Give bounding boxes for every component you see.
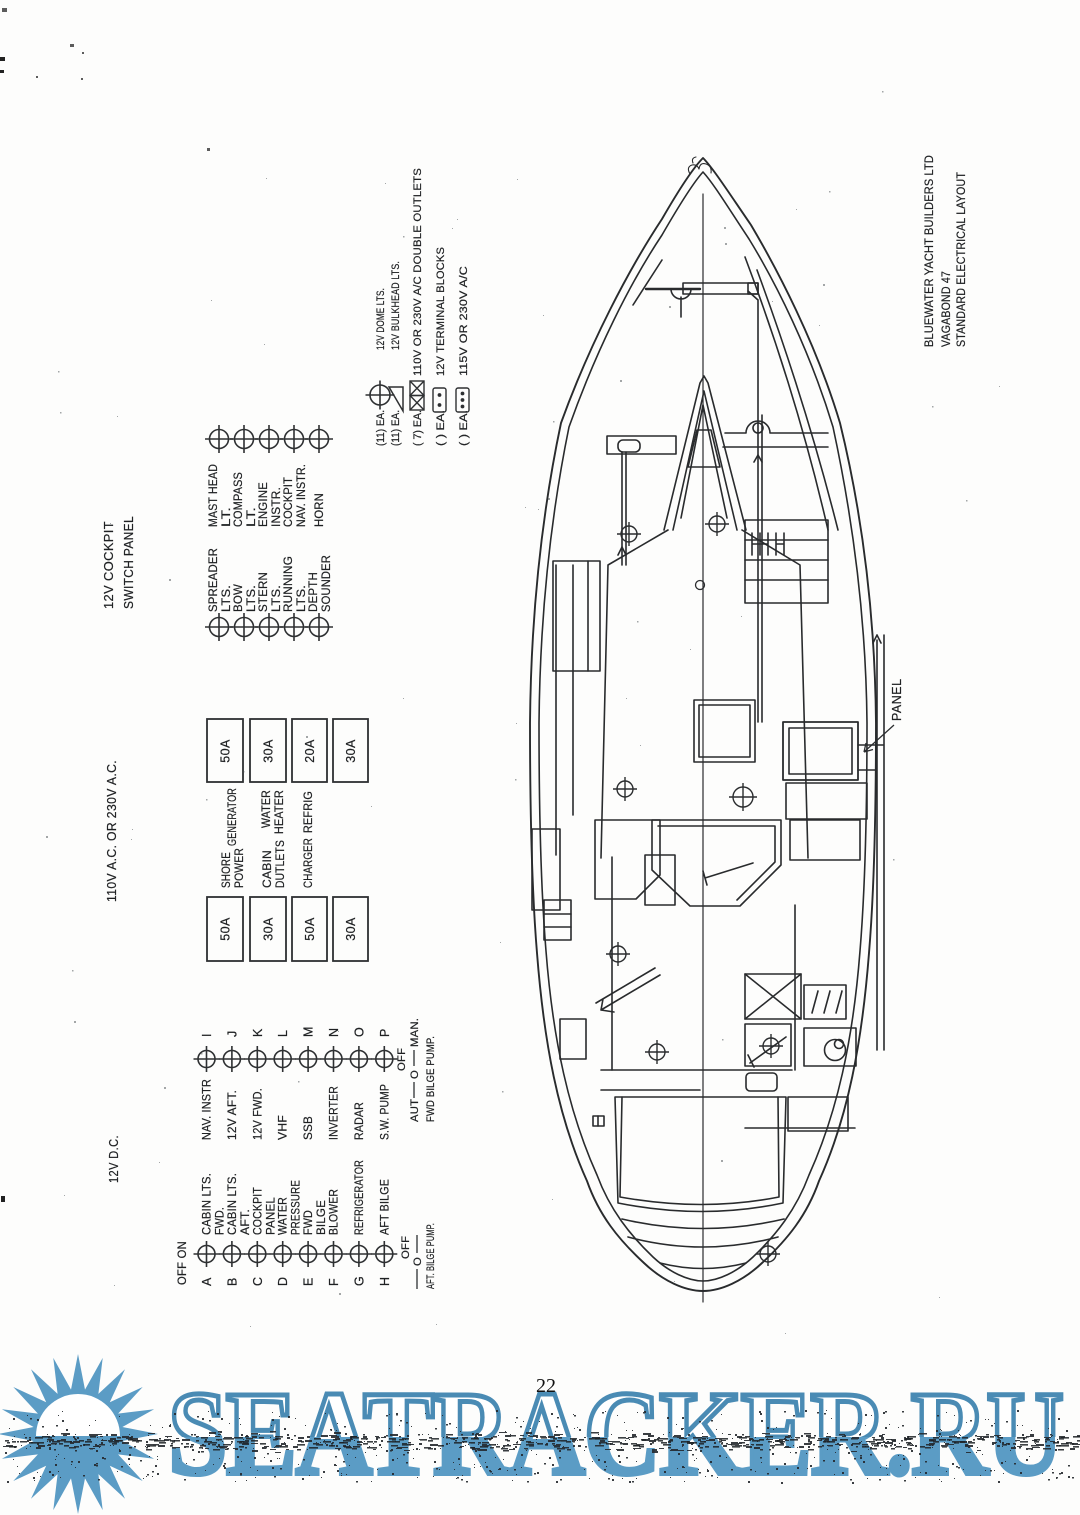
- svg-text:22: 22: [536, 1375, 556, 1397]
